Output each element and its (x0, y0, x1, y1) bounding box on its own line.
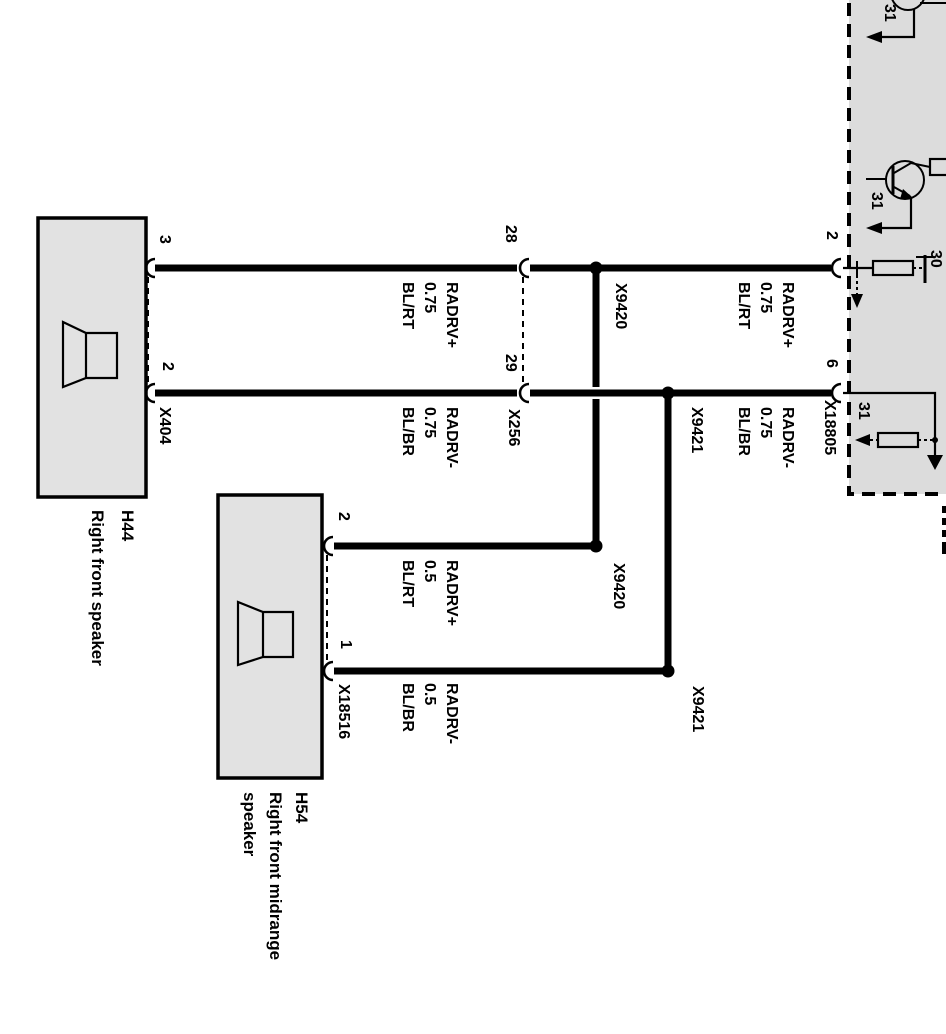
wire-label-w3: RADRV+ 0.5 BL/RT (396, 560, 462, 626)
wire-gauge: 0.75 (754, 282, 776, 348)
pin-label-x256-plus: 28 (501, 225, 519, 243)
pin-label-amp-minus: 6 (822, 359, 840, 368)
h54-speaker-box (218, 495, 322, 778)
junction-dot (590, 262, 603, 275)
terminal-label-30: 30 (926, 250, 944, 268)
connector-label-x18805: X18805 (820, 400, 838, 455)
wire-signal: RADRV- (440, 407, 462, 468)
wire-color: BL/RT (732, 282, 754, 348)
junction-label-x9421: X9421 (688, 686, 706, 732)
junction-label-x9421: X9421 (687, 407, 705, 453)
wire-gauge: 0.75 (754, 407, 776, 468)
wire-label-w4: RADRV- 0.5 BL/BR (396, 683, 462, 744)
connector-label-x256: X256 (504, 409, 522, 446)
h54-component-label: H54 Right front midrange speaker (236, 792, 314, 960)
pin-label-amp-plus: 2 (822, 231, 840, 240)
wire-gauge: 0.75 (418, 407, 440, 468)
wire-gauge: 0.5 (418, 560, 440, 626)
pin-label-h54-plus: 2 (334, 512, 352, 521)
connector-label-x404: X404 (155, 407, 173, 444)
wire-label-w1-left: RADRV+ 0.75 BL/RT (396, 282, 462, 348)
terminal-label-31: 31 (880, 4, 898, 22)
clipped-label-fragment (942, 506, 946, 554)
clipped-label-fragment (942, 506, 946, 513)
h44-name: Right front speaker (82, 510, 112, 666)
junction-label-x9420: X9420 (611, 283, 629, 329)
pin-label-h54-minus: 1 (336, 640, 354, 649)
wire-signal: RADRV+ (776, 282, 798, 348)
pin-label-h44-plus: 3 (155, 235, 173, 244)
junction-dots (590, 262, 675, 678)
terminal-label-31: 31 (867, 192, 885, 210)
wire-gauge: 0.5 (418, 683, 440, 744)
wire-signal: RADRV- (776, 407, 798, 468)
wire-color: BL/BR (396, 683, 418, 744)
wire-color: BL/RT (396, 282, 418, 348)
pin-label-h44-minus: 2 (158, 362, 176, 371)
h54-name-line2: speaker (236, 792, 262, 960)
junction-label-x9420: X9420 (609, 563, 627, 609)
clipped-label-fragment (942, 542, 946, 554)
wire-label-w1-right: RADRV+ 0.75 BL/RT (732, 282, 798, 348)
clipped-label-fragment (942, 530, 946, 537)
pin-hook (324, 537, 333, 555)
wire-gauge: 0.75 (418, 282, 440, 348)
h54-name-line1: Right front midrange (262, 792, 288, 960)
pin-hook (520, 259, 529, 277)
clipped-label-fragment (942, 518, 946, 525)
junction-dot (662, 387, 675, 400)
wire-signal: RADRV- (440, 683, 462, 744)
h44-speaker-box (38, 218, 146, 497)
junction-dot (932, 437, 938, 443)
h44-code: H44 (112, 510, 142, 666)
wire-signal: RADRV+ (440, 560, 462, 626)
pin-hook (324, 662, 333, 680)
connector-links (148, 277, 523, 662)
terminal-label-31: 31 (854, 402, 872, 420)
junction-dot (662, 665, 675, 678)
pin-hook (832, 259, 841, 277)
wire-color: BL/RT (396, 560, 418, 626)
connector-label-x18516: X18516 (334, 684, 352, 739)
h44-component-label: H44 Right front speaker (82, 510, 142, 666)
junction-dot (590, 540, 603, 553)
h54-code: H54 (288, 792, 314, 960)
wire-color: BL/BR (396, 407, 418, 468)
wire-label-w2-right: RADRV- 0.75 BL/BR (732, 407, 798, 468)
pin-hook (520, 384, 529, 402)
pin-label-x256-minus: 29 (501, 354, 519, 372)
wiring-diagram: 3 2 X404 28 29 X256 2 6 X18805 2 1 X1851… (0, 0, 946, 1034)
wire-label-w2-left: RADRV- 0.75 BL/BR (396, 407, 462, 468)
wire-signal: RADRV+ (440, 282, 462, 348)
wire-color: BL/BR (732, 407, 754, 468)
